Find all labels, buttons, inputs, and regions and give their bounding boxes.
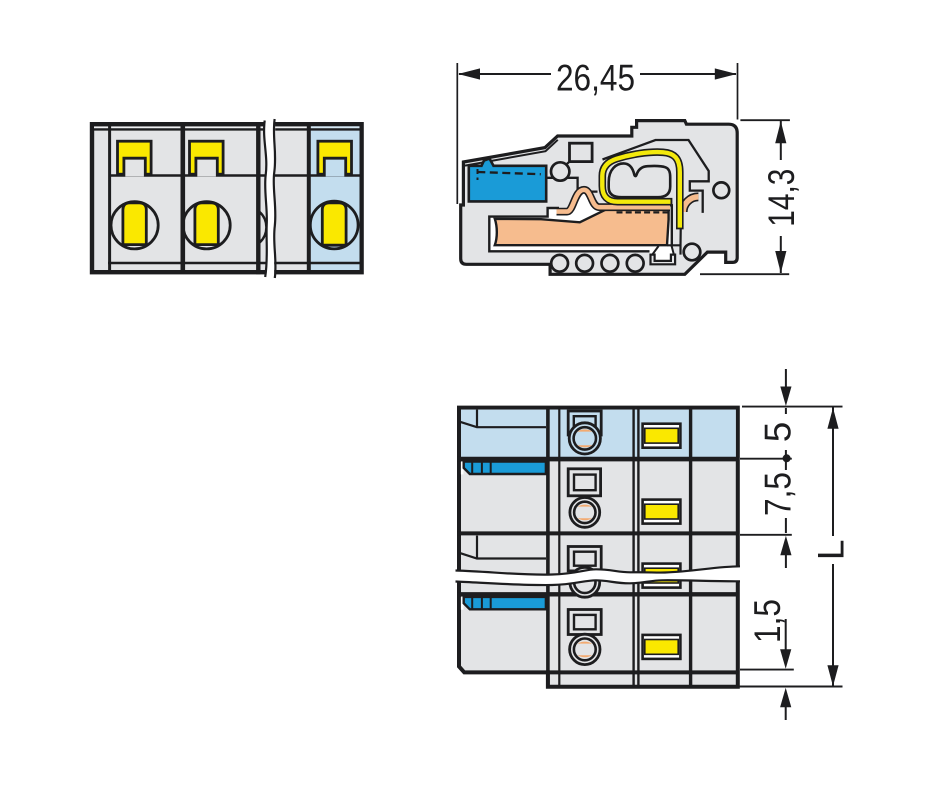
svg-text:7,5: 7,5 [758, 472, 799, 516]
svg-text:1,5: 1,5 [747, 599, 788, 643]
svg-text:L: L [811, 540, 852, 561]
svg-text:14,3: 14,3 [761, 169, 802, 227]
svg-text:5: 5 [758, 422, 799, 443]
svg-text:26,45: 26,45 [556, 58, 635, 99]
